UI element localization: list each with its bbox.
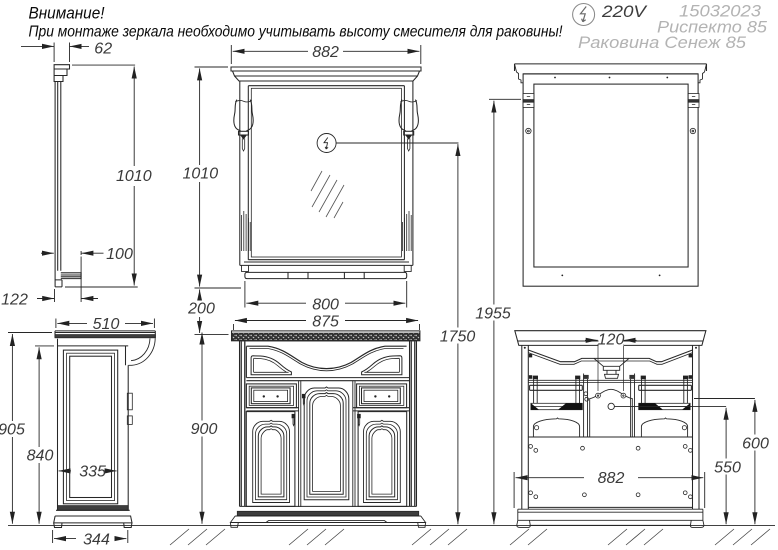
- svg-text:1010: 1010: [116, 168, 152, 185]
- svg-text:900: 900: [191, 421, 218, 438]
- svg-text:882: 882: [598, 470, 625, 487]
- svg-text:122: 122: [1, 292, 28, 309]
- svg-text:220V: 220V: [601, 2, 648, 21]
- svg-text:62: 62: [94, 41, 112, 58]
- svg-text:510: 510: [93, 316, 120, 333]
- svg-text:1010: 1010: [183, 166, 219, 183]
- svg-text:335: 335: [79, 463, 106, 480]
- svg-text:1955: 1955: [475, 306, 511, 323]
- svg-text:800: 800: [312, 297, 339, 314]
- svg-text:100: 100: [106, 246, 133, 263]
- svg-text:840: 840: [27, 448, 54, 465]
- svg-text:1750: 1750: [440, 329, 476, 346]
- svg-text:905: 905: [0, 422, 25, 439]
- svg-text:600: 600: [742, 436, 769, 453]
- svg-text:120: 120: [598, 331, 625, 348]
- svg-text:Раковина Сенеж 85: Раковина Сенеж 85: [578, 33, 747, 52]
- svg-text:При монтаже зеркала необходимо: При монтаже зеркала необходимо учитывать…: [29, 24, 563, 41]
- svg-text:550: 550: [714, 460, 741, 477]
- svg-text:344: 344: [83, 531, 110, 548]
- svg-text:882: 882: [312, 44, 339, 61]
- svg-text:200: 200: [187, 301, 215, 318]
- svg-text:875: 875: [312, 314, 339, 331]
- svg-text:Внимание!: Внимание!: [29, 5, 105, 23]
